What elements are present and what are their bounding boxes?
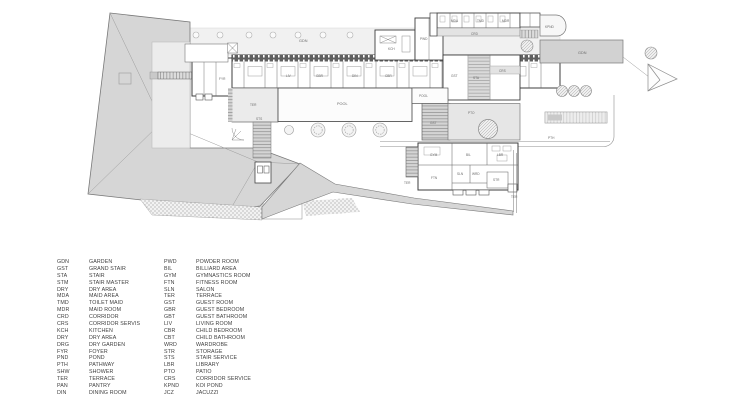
legend-row: STMSTAIR MASTER (57, 280, 140, 287)
path-line (623, 57, 649, 77)
legend-code: SLN (164, 287, 196, 294)
room-label: PTH (548, 136, 555, 140)
legend-code: PTO (164, 369, 196, 376)
legend-code: KPND (164, 383, 196, 390)
legend-desc: PANTRY (89, 383, 111, 390)
legend-code: PWD (164, 259, 196, 266)
foyer-tab (196, 94, 203, 100)
room-label: CRD (471, 32, 479, 36)
legend-desc: CHILD BEDROOM (196, 328, 242, 335)
room-label: KCH (388, 47, 395, 51)
legend-code: GDN (57, 259, 89, 266)
legend-code: WRD (164, 342, 196, 349)
legend-row: STSSTAIR SERVICE (164, 355, 251, 362)
legend-desc: POWDER ROOM (196, 259, 239, 266)
room-label: GST (451, 74, 458, 78)
legend-row: STRSTORAGE (164, 349, 251, 356)
legend-desc: KITCHEN (89, 328, 113, 335)
legend-desc: GUEST BEDROOM (196, 307, 244, 314)
legend-desc: STAIR SERVICE (196, 355, 237, 362)
legend-desc: FOYER (89, 349, 108, 356)
legend-desc: MAID ROOM (89, 307, 121, 314)
legend-row: GYMGYMNASTICS ROOM (164, 273, 251, 280)
row-trees (557, 86, 592, 97)
room-label: SLN (457, 172, 464, 176)
legend-row: PTOPATIO (164, 369, 251, 376)
legend-row: DRGDRY GARDEN (57, 342, 140, 349)
legend-row: KPNDKOI POND (164, 383, 251, 390)
legend-desc: TOILET MAID (89, 300, 123, 307)
legend-desc: SALON (196, 287, 214, 294)
legend-desc: PATHWAY (89, 362, 115, 369)
service-stair (253, 122, 271, 158)
legend-desc: DRY AREA (89, 335, 116, 342)
entry-pad (185, 44, 228, 62)
room-label: CRS (499, 69, 506, 73)
legend-desc: FITNESS ROOM (196, 280, 238, 287)
legend-row: DRYDRY AREA (57, 287, 140, 294)
legend-code: KCH (57, 328, 89, 335)
legend-row: CRSCORRIDOR SERVICE (164, 376, 251, 383)
legend-code: MDA (57, 293, 89, 300)
legend-code: GST (164, 300, 196, 307)
courtyard (152, 42, 190, 148)
room-label: DIN (352, 74, 358, 78)
legend-code: FYR (57, 349, 89, 356)
room-label: KPND (545, 25, 555, 29)
room-label: GDN (299, 39, 308, 43)
legend-row: CRDCORRIDOR (57, 314, 140, 321)
legend-row: SLNSALON (164, 287, 251, 294)
legend-desc: STORAGE (196, 349, 223, 356)
tree-icon (645, 47, 657, 59)
legend-row: PANPANTRY (57, 383, 140, 390)
kitchen-block (375, 30, 415, 60)
legend-code: FTN (164, 280, 196, 287)
legend-row: MDRMAID ROOM (57, 307, 140, 314)
room-label: GDN (578, 51, 587, 55)
legend-left-column: GDNGARDENGSTGRAND STAIRSTASTAIRSTMSTAIR … (57, 259, 140, 397)
legend-code: DRY (57, 335, 89, 342)
legend-code: SHW (57, 369, 89, 376)
legend-desc: GUEST ROOM (196, 300, 233, 307)
legend-code: TER (164, 293, 196, 300)
legend-desc: MAID AREA (89, 293, 119, 300)
legend-code: CBT (164, 335, 196, 342)
legend-code: PAN (57, 383, 89, 390)
legend-row: WRDWARDROBE (164, 342, 251, 349)
legend-row: LBRLIBRARY (164, 362, 251, 369)
legend-desc: DRY GARDEN (89, 342, 125, 349)
stair-run (469, 56, 490, 100)
legend-code: GBR (164, 307, 196, 314)
pool-kids (412, 88, 448, 104)
floor-plan-page: GDNGDNPOOLPOOLPTOTERGSTPTHKPNDCRDKCHPWDF… (0, 0, 740, 400)
legend-right-column: PWDPOWDER ROOMBILBILLIARD AREAGYMGYMNAST… (164, 259, 251, 397)
legend-desc: KOI POND (196, 383, 223, 390)
legend-row: GBRGUEST BEDROOM (164, 307, 251, 314)
tree-icon (479, 120, 498, 139)
legend-code: BIL (164, 266, 196, 273)
legend-desc: POND (89, 355, 105, 362)
legend-row: FTNFITNESS ROOM (164, 280, 251, 287)
legend-code: GYM (164, 273, 196, 280)
room-label: TMD (477, 19, 485, 23)
legend-desc: CHILD BATHROOM (196, 335, 245, 342)
legend-row: PTHPATHWAY (57, 362, 140, 369)
room-label: LBR (497, 153, 504, 157)
legend-code: CRS (164, 376, 196, 383)
legend-desc: BILLIARD AREA (196, 266, 236, 273)
service-cap (430, 13, 437, 36)
legend-desc: GARDEN (89, 259, 112, 266)
legend-code: DIN (57, 390, 89, 397)
legend-desc: JACUZZI (196, 390, 218, 397)
room-label: WRD (472, 172, 480, 176)
spiral-stair (232, 128, 244, 140)
room-label: PWD (420, 37, 428, 41)
pergola-pad (548, 115, 562, 121)
room-label: BIL (466, 153, 471, 157)
legend-row: JCZJACUZZI (164, 390, 251, 397)
room-label: GST (430, 121, 437, 125)
legend-desc: CORRIDOR SERVICE (196, 376, 251, 383)
room-label: STR (493, 178, 500, 182)
bridge-walkway (158, 72, 192, 79)
legend-desc: LIBRARY (196, 362, 219, 369)
legend-row: GSTGUEST ROOM (164, 300, 251, 307)
legend-row: LIVLIVING ROOM (164, 321, 251, 328)
legend-row: DINDINING ROOM (57, 390, 140, 397)
legend-desc: SHOWER (89, 369, 113, 376)
room-label: STS (256, 117, 262, 121)
legend-code: GST (57, 266, 89, 273)
legend-code: GBT (164, 314, 196, 321)
legend-code: LIV (164, 321, 196, 328)
deck-hatch (520, 30, 538, 38)
legend-row: TMDTOILET MAID (57, 300, 140, 307)
foyer-block (192, 58, 232, 96)
legend-code: STS (164, 355, 196, 362)
legend-desc: STAIR MASTER (89, 280, 129, 287)
room-label: POOL (337, 102, 348, 106)
legend-code: TMD (57, 300, 89, 307)
foyer-tab (205, 94, 212, 100)
legend-desc: GUEST BATHROOM (196, 314, 247, 321)
room-label: PTO (468, 111, 475, 115)
legend-desc: CORRIDOR SERVIS (89, 321, 140, 328)
legend-row: PNDPOND (57, 355, 140, 362)
room-label: STA (473, 76, 480, 80)
legend-row: MDAMAID AREA (57, 293, 140, 300)
legend-code: DRY (57, 287, 89, 294)
service-corridor (437, 28, 520, 36)
legend-code: STR (164, 349, 196, 356)
stipple-patch (302, 198, 360, 216)
room-label: GYM (430, 153, 438, 157)
legend-row: GSTGRAND STAIR (57, 266, 140, 273)
room-label: TER (511, 195, 518, 199)
bridge-pad (150, 72, 158, 79)
legend-code: JCZ (164, 390, 196, 397)
legend-row: TERTERRACE (164, 293, 251, 300)
room-label: FTN (431, 176, 438, 180)
legend-code: MDR (57, 307, 89, 314)
legend-row: DRYDRY AREA (57, 335, 140, 342)
legend-code: CBR (164, 328, 196, 335)
legend-row: SHWSHOWER (57, 369, 140, 376)
room-label: MDR (502, 19, 510, 23)
legend-row: KCHKITCHEN (57, 328, 140, 335)
legend-desc: LIVING ROOM (196, 321, 232, 328)
room-label: FYR (219, 77, 226, 81)
legend-row: CBTCHILD BATHROOM (164, 335, 251, 342)
legend-code: TER (57, 376, 89, 383)
legend-code: CRS (57, 321, 89, 328)
legend-code: STM (57, 280, 89, 287)
legend-desc: DRY AREA (89, 287, 116, 294)
room-label: TER (404, 181, 411, 185)
legend-code: PND (57, 355, 89, 362)
legend-code: LBR (164, 362, 196, 369)
site-plan-drawing: GDNGDNPOOLPOOLPTOTERGSTPTHKPNDCRDKCHPWDF… (0, 0, 740, 235)
legend-desc: GYMNASTICS ROOM (196, 273, 250, 280)
room-label: GBR (316, 74, 324, 78)
legend-desc: TERRACE (89, 376, 115, 383)
room-label: MDA (451, 19, 459, 23)
tree-icon (521, 40, 533, 52)
legend-desc: GRAND STAIR (89, 266, 126, 273)
legend-desc: TERRACE (196, 293, 222, 300)
legend-code: DRG (57, 342, 89, 349)
legend-row: PWDPOWDER ROOM (164, 259, 251, 266)
legend-desc: CORRIDOR (89, 314, 119, 321)
legend-desc: DINING ROOM (89, 390, 127, 397)
terrace-trees (285, 123, 388, 137)
skylight-icon (228, 43, 238, 53)
legend-row: CBRCHILD BEDROOM (164, 328, 251, 335)
legend-desc: PATIO (196, 369, 212, 376)
legend-row: GBTGUEST BATHROOM (164, 314, 251, 321)
terrace-edge-hatch (228, 88, 233, 122)
annex-stair (406, 147, 418, 177)
folded-plane (648, 64, 677, 91)
legend-row: STASTAIR (57, 273, 140, 280)
legend-row: GDNGARDEN (57, 259, 140, 266)
legend-code: CRD (57, 314, 89, 321)
legend-row: TERTERRACE (57, 376, 140, 383)
legend-code: STA (57, 273, 89, 280)
legend-row: BILBILLIARD AREA (164, 266, 251, 273)
legend-row: FYRFOYER (57, 349, 140, 356)
lift-structure (255, 162, 271, 183)
legend-desc: WARDROBE (196, 342, 228, 349)
legend-code: PTH (57, 362, 89, 369)
legend-desc: STAIR (89, 273, 105, 280)
room-label: POOL (419, 94, 428, 98)
room-label: TER (250, 103, 257, 107)
room-label: CBR (385, 74, 392, 78)
legend-row: CRSCORRIDOR SERVIS (57, 321, 140, 328)
